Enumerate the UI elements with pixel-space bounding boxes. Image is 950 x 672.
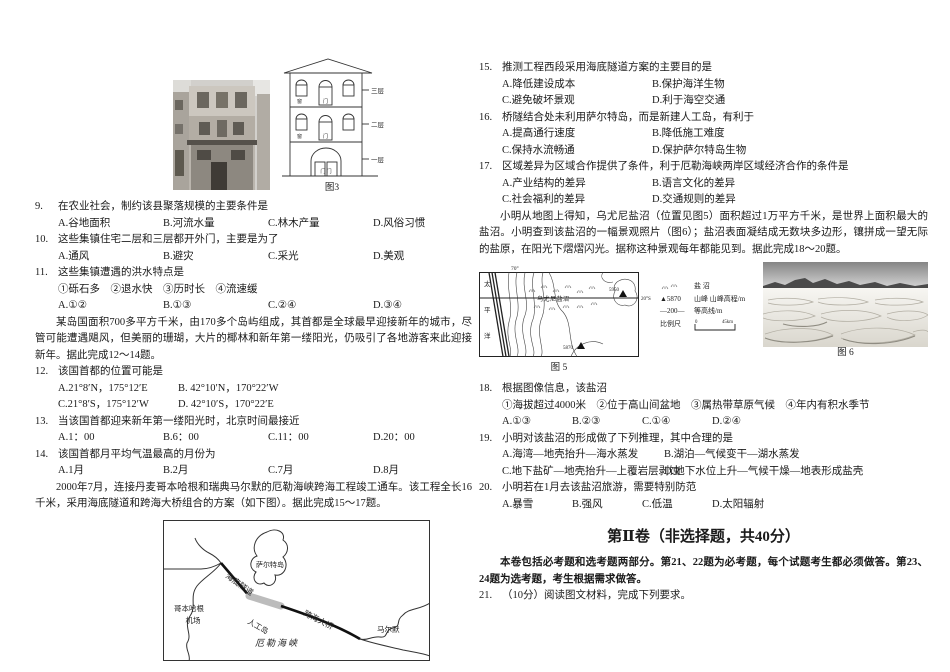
question-stem: 该国首都的位置可能是 xyxy=(58,364,472,381)
oresund-map: 哥本哈根 机场 萨尔特岛 海底隧道 人工岛 跨海大桥 马尔默 厄勒海峡 xyxy=(163,520,472,661)
option-c: C.21°8′S，175°12′W xyxy=(58,397,178,414)
question-number: 20. xyxy=(479,480,502,497)
peak-5950-label: 5950 xyxy=(609,288,620,293)
question-number: 15. xyxy=(479,60,502,77)
figure-caption: 图 5 xyxy=(479,362,639,375)
option-row: C.21°8′S，175°12′WD. 42°10′S，170°22′E xyxy=(35,397,472,414)
question-number: 9. xyxy=(35,199,58,216)
passage-uyuni: 小明从地图上得知，乌尤尼盐沼（位置见图5）面积超过1万平方千米，是世界上面积最大… xyxy=(479,209,928,259)
strait-label: 厄勒海峡 xyxy=(255,638,299,648)
contour-legend-symbol: —200— xyxy=(660,305,694,318)
section2-title: 第Ⅱ卷（非选择题，共40分） xyxy=(479,526,928,548)
option-row: A.通风B.避灾C.采光D.美观 xyxy=(35,249,472,266)
question-line: 11.这些集镇遭遇的洪水特点是 xyxy=(35,265,472,282)
option-row: A.提高通行速度B.降低施工难度 xyxy=(479,126,928,143)
section2-note: 本卷包括必考题和选考题两部分。第21、22题为必考题，每个试题考生都必须做答。第… xyxy=(479,555,928,588)
door-label: 门 xyxy=(323,133,328,140)
question-number: 12. xyxy=(35,364,58,381)
salt-marsh-legend-symbol xyxy=(660,282,694,291)
question-number: 19. xyxy=(479,431,502,448)
option-c: C.林木产量 xyxy=(268,216,373,233)
oresund-map-image: 哥本哈根 机场 萨尔特岛 海底隧道 人工岛 跨海大桥 马尔默 厄勒海峡 xyxy=(163,520,430,661)
question-10: 10.这些集镇住宅二层和三层都开外门，主要是为了A.通风B.避灾C.采光D.美观 xyxy=(35,232,472,265)
option-b: B.河流水量 xyxy=(163,216,268,233)
question-number: 13. xyxy=(35,414,58,431)
question-stem: 小明若在1月去该盐沼旅游，需要特别防范 xyxy=(502,480,928,497)
figure5-map: 70° xyxy=(479,262,659,375)
option-row: C.社会福利的差异D.交通规则的差异 xyxy=(479,192,928,209)
malmo-label: 马尔默 xyxy=(377,624,400,634)
door-label: 门 门 xyxy=(320,168,331,175)
option-c: C.7月 xyxy=(268,463,373,480)
question-15: 15.推测工程西段采用海底隧道方案的主要目的是A.降低建设成本B.保护海洋生物C… xyxy=(479,60,928,110)
question-subitems: ①砾石多 ②退水快 ③历时长 ④流速缓 xyxy=(35,282,472,299)
option-a: A.谷地面积 xyxy=(58,216,163,233)
option-row: A.暴雪B.强风C.低温D.太阳辐射 xyxy=(479,497,928,514)
question-stem: 小明对该盐沼的形成做了下列推理，其中合理的是 xyxy=(502,431,928,448)
scale-bar: 0 45km xyxy=(694,318,740,332)
question-line: 16.桥隧结合处未利用萨尔特岛，而是新建人工岛，有利于 xyxy=(479,110,928,127)
exam-page: { "questions": { "q9": {"num":"9.","stem… xyxy=(0,0,950,672)
option-d: D.利于海空交通 xyxy=(652,93,725,110)
peak-legend-symbol: ▲5870 xyxy=(660,293,694,306)
option-b: B.强风 xyxy=(572,497,642,514)
option-d: D.②④ xyxy=(712,414,741,431)
option-a: A.1：00 xyxy=(58,430,163,447)
option-row: A.21°8′N，175°12′EB. 42°10′N，170°22′W xyxy=(35,381,472,398)
question-17: 17.区域差异为区域合作提供了条件，利于厄勒海峡两岸区域经济合作的条件是A.产业… xyxy=(479,159,928,209)
option-d: D.地下水位上升—气候干燥—地表形成盐壳 xyxy=(664,464,863,481)
floor1-label: 一层 xyxy=(371,156,385,164)
figure3-house: 窗 门 窗 门 门 门 三层 二层 一层 图3 xyxy=(278,56,386,195)
question-9: 9.在农业社会，制约该县聚落规模的主要条件是A.谷地面积B.河流水量C.林木产量… xyxy=(35,199,472,232)
question-11: 11.这些集镇遭遇的洪水特点是①砾石多 ②退水快 ③历时长 ④流速缓A.①②B.… xyxy=(35,265,472,315)
saltholm-label: 萨尔特岛 xyxy=(256,560,284,569)
question-stem: （10分）阅读图文材料，完成下列要求。 xyxy=(502,588,928,605)
option-b: B.语言文化的差异 xyxy=(652,176,735,193)
question-12: 12.该国首都的位置可能是A.21°8′N，175°12′EB. 42°10′N… xyxy=(35,364,472,414)
option-d: D.美观 xyxy=(373,249,404,266)
option-c: C.②④ xyxy=(268,298,373,315)
question-line: 21.（10分）阅读图文材料，完成下列要求。 xyxy=(479,588,928,605)
copenhagen-airport-label2: 机场 xyxy=(186,615,201,625)
option-b: B.湖泊—气候变干—湖水蒸发 xyxy=(664,447,800,464)
question-20: 20.小明若在1月去该盐沼旅游，需要特别防范A.暴雪B.强风C.低温D.太阳辐射 xyxy=(479,480,928,513)
question-stem: 区域差异为区域合作提供了条件，利于厄勒海峡两岸区域经济合作的条件是 xyxy=(502,159,928,176)
window-label: 窗 xyxy=(297,133,302,140)
option-d: D.风俗习惯 xyxy=(373,216,425,233)
option-d: D. 42°10′S，170°22′E xyxy=(178,397,274,414)
legend-marsh-label: 盐 沼 xyxy=(694,280,710,293)
option-c: C.低温 xyxy=(642,497,712,514)
question-subitems: ①海拔超过4000米 ②位于高山间盆地 ③属热带草原气候 ④年内有积水季节 xyxy=(479,398,928,415)
legend-contour-label: 等高线/m xyxy=(694,305,722,318)
door-label: 门 xyxy=(323,98,328,105)
question-line: 13.当该国首都迎来新年第一缕阳光时，北京时间最接近 xyxy=(35,414,472,431)
floor3-label: 三层 xyxy=(371,87,385,95)
option-row: A.①②B.①③C.②④D.③④ xyxy=(35,298,472,315)
question-stem: 这些集镇遭遇的洪水特点是 xyxy=(58,265,472,282)
question-number: 10. xyxy=(35,232,58,249)
figure-caption: 图 6 xyxy=(837,347,854,360)
figure5-legend: 盐 沼 ▲5870 山峰 山峰高程/m —200— 等高线/m 比例尺 0 45… xyxy=(660,280,762,375)
salt-flat-photo xyxy=(763,262,928,347)
house-diagram: 窗 门 窗 门 门 门 三层 二层 一层 xyxy=(278,56,386,182)
option-c: C.避免破坏景观 xyxy=(502,93,652,110)
uyuni-label: 乌尤尼盐沼 xyxy=(537,295,570,303)
option-row: C.保持水流畅通D.保护萨尔特岛生物 xyxy=(479,143,928,160)
settlement-photo xyxy=(173,80,270,195)
option-row: A.①③B.②③C.①④D.②④ xyxy=(479,414,928,431)
option-row: A.1月B.2月C.7月D.8月 xyxy=(35,463,472,480)
uyuni-map-image: 70° xyxy=(479,262,659,362)
option-a: A.通风 xyxy=(58,249,163,266)
question-line: 17.区域差异为区域合作提供了条件，利于厄勒海峡两岸区域经济合作的条件是 xyxy=(479,159,928,176)
option-a: A.暴雪 xyxy=(502,497,572,514)
option-row: A.海湾—地壳抬升—海水蒸发B.湖泊—气候变干—湖水蒸发 xyxy=(479,447,928,464)
question-number: 11. xyxy=(35,265,58,282)
option-d: D.20：00 xyxy=(373,430,415,447)
question-stem: 推测工程西段采用海底隧道方案的主要目的是 xyxy=(502,60,928,77)
settlement-photo-image xyxy=(173,80,270,190)
window-label: 窗 xyxy=(297,98,302,105)
passage-island-country: 某岛国面积700多平方千米，由170多个岛屿组成，其首都是全球最早迎接新年的城市… xyxy=(35,315,472,365)
option-c: C.11：00 xyxy=(268,430,373,447)
option-d: D.8月 xyxy=(373,463,399,480)
question-number: 17. xyxy=(479,159,502,176)
question-line: 10.这些集镇住宅二层和三层都开外门，主要是为了 xyxy=(35,232,472,249)
copenhagen-airport-label: 哥本哈根 xyxy=(174,603,204,613)
option-a: A.提高通行速度 xyxy=(502,126,652,143)
floor2-label: 二层 xyxy=(371,121,385,129)
option-b: B.降低施工难度 xyxy=(652,126,725,143)
option-c: C.①④ xyxy=(642,414,712,431)
question-stem: 该国首都月平均气温最高的月份为 xyxy=(58,447,472,464)
scale-zero: 0 xyxy=(695,320,698,325)
option-a: A.21°8′N，175°12′E xyxy=(58,381,178,398)
scale-max: 45km xyxy=(722,320,733,325)
option-row: A.产业结构的差异B.语言文化的差异 xyxy=(479,176,928,193)
longitude-label: 70° xyxy=(511,265,519,272)
question-line: 14.该国首都月平均气温最高的月份为 xyxy=(35,447,472,464)
question-line: 9.在农业社会，制约该县聚落规模的主要条件是 xyxy=(35,199,472,216)
option-b: B.避灾 xyxy=(163,249,268,266)
question-19: 19.小明对该盐沼的形成做了下列推理，其中合理的是A.海湾—地壳抬升—海水蒸发B… xyxy=(479,431,928,481)
figure6-photo: 图 6 xyxy=(763,262,928,375)
option-b: B. 42°10′N，170°22′W xyxy=(178,381,279,398)
question-line: 20.小明若在1月去该盐沼旅游，需要特别防范 xyxy=(479,480,928,497)
option-row: C.地下盐矿—地壳抬升—上覆岩层剥蚀D.地下水位上升—气候干燥—地表形成盐壳 xyxy=(479,464,928,481)
question-line: 18.根据图像信息，该盐沼 xyxy=(479,381,928,398)
question-number: 16. xyxy=(479,110,502,127)
option-row: C.避免破坏景观D.利于海空交通 xyxy=(479,93,928,110)
question-line: 19.小明对该盐沼的形成做了下列推理，其中合理的是 xyxy=(479,431,928,448)
option-a: A.产业结构的差异 xyxy=(502,176,652,193)
option-a: A.降低建设成本 xyxy=(502,77,652,94)
option-row: A.降低建设成本B.保护海洋生物 xyxy=(479,77,928,94)
passage-oresund: 2000年7月，连接丹麦哥本哈根和瑞典马尔默的厄勒海峡跨海工程竣工通车。该工程全… xyxy=(35,480,472,513)
option-c: C.社会福利的差异 xyxy=(502,192,652,209)
legend-peak-label: 山峰 山峰高程/m xyxy=(694,293,745,306)
question-18: 18.根据图像信息，该盐沼①海拔超过4000米 ②位于高山间盆地 ③属热带草原气… xyxy=(479,381,928,431)
option-d: D.③④ xyxy=(373,298,402,315)
option-b: B.②③ xyxy=(572,414,642,431)
question-line: 12.该国首都的位置可能是 xyxy=(35,364,472,381)
question-16: 16.桥隧结合处未利用萨尔特岛，而是新建人工岛，有利于A.提高通行速度B.降低施… xyxy=(479,110,928,160)
latitude-label: 20°S xyxy=(641,297,651,302)
option-d: D.交通规则的差异 xyxy=(652,192,736,209)
question-21: 21.（10分）阅读图文材料，完成下列要求。 xyxy=(479,588,928,605)
option-a: A.①③ xyxy=(502,414,572,431)
option-c: C.采光 xyxy=(268,249,373,266)
peak-5870-label: 5870 xyxy=(563,346,574,351)
option-c: C.地下盐矿—地壳抬升—上覆岩层剥蚀 xyxy=(502,464,664,481)
option-row: A.1：00B.6：00C.11：00D.20：00 xyxy=(35,430,472,447)
question-number: 18. xyxy=(479,381,502,398)
option-b: B.6：00 xyxy=(163,430,268,447)
option-b: B.①③ xyxy=(163,298,268,315)
figure-caption: 图3 xyxy=(325,182,339,195)
question-number: 14. xyxy=(35,447,58,464)
right-column: 15.推测工程西段采用海底隧道方案的主要目的是A.降低建设成本B.保护海洋生物C… xyxy=(479,60,928,605)
left-column: 窗 门 窗 门 门 门 三层 二层 一层 图3 9.在农业社会，制约该县聚落规模… xyxy=(35,56,472,661)
scale-label: 比例尺 xyxy=(660,318,694,331)
option-b: B.保护海洋生物 xyxy=(652,77,725,94)
question-stem: 这些集镇住宅二层和三层都开外门，主要是为了 xyxy=(58,232,472,249)
option-a: A.海湾—地壳抬升—海水蒸发 xyxy=(502,447,664,464)
question-stem: 在农业社会，制约该县聚落规模的主要条件是 xyxy=(58,199,472,216)
option-a: A.1月 xyxy=(58,463,163,480)
question-14: 14.该国首都月平均气温最高的月份为A.1月B.2月C.7月D.8月 xyxy=(35,447,472,480)
option-b: B.2月 xyxy=(163,463,268,480)
figure3-group: 窗 门 窗 门 门 门 三层 二层 一层 图3 xyxy=(173,56,472,195)
option-a: A.①② xyxy=(58,298,163,315)
option-c: C.保持水流畅通 xyxy=(502,143,652,160)
option-d: D.太阳辐射 xyxy=(712,497,764,514)
figure5-6-group: 70° xyxy=(479,262,928,375)
question-13: 13.当该国首都迎来新年第一缕阳光时，北京时间最接近A.1：00B.6：00C.… xyxy=(35,414,472,447)
option-d: D.保护萨尔特岛生物 xyxy=(652,143,746,160)
question-stem: 桥隧结合处未利用萨尔特岛，而是新建人工岛，有利于 xyxy=(502,110,928,127)
question-stem: 根据图像信息，该盐沼 xyxy=(502,381,928,398)
question-stem: 当该国首都迎来新年第一缕阳光时，北京时间最接近 xyxy=(58,414,472,431)
option-row: A.谷地面积B.河流水量C.林木产量D.风俗习惯 xyxy=(35,216,472,233)
question-line: 15.推测工程西段采用海底隧道方案的主要目的是 xyxy=(479,60,928,77)
question-number: 21. xyxy=(479,588,502,605)
